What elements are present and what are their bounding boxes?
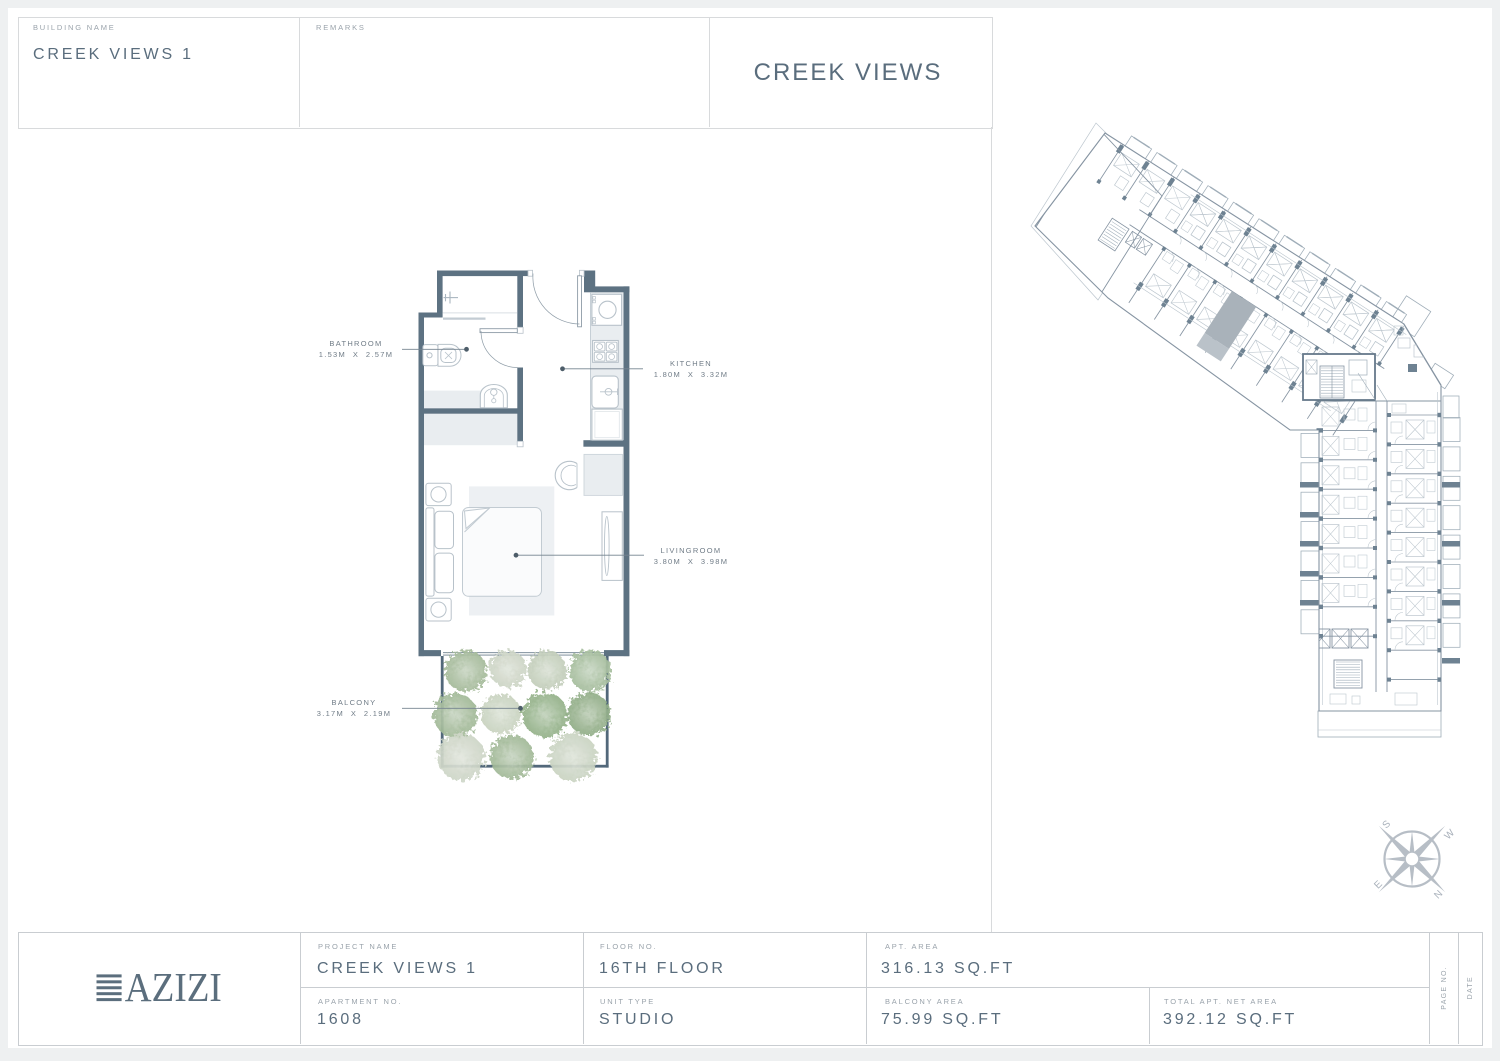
svg-text:W: W	[1443, 827, 1458, 842]
svg-text:E: E	[1372, 879, 1385, 892]
